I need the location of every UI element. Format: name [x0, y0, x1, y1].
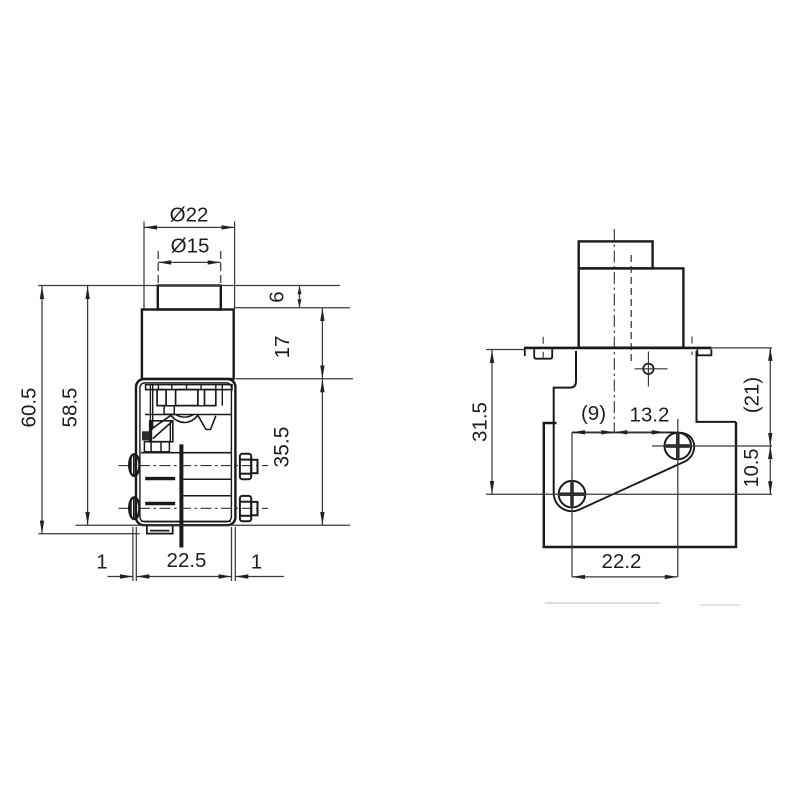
svg-text:22.2: 22.2 [602, 550, 642, 573]
svg-text:Ø15: Ø15 [171, 235, 210, 258]
svg-text:1: 1 [251, 551, 262, 574]
svg-text:(9): (9) [581, 402, 606, 425]
svg-text:35.5: 35.5 [271, 427, 294, 468]
svg-text:17: 17 [271, 336, 294, 359]
svg-text:10.5: 10.5 [741, 449, 763, 488]
svg-text:22.5: 22.5 [167, 549, 207, 572]
svg-text:60.5: 60.5 [18, 388, 41, 428]
svg-text:1: 1 [96, 551, 107, 574]
svg-text:(21): (21) [741, 377, 764, 413]
svg-text:13.2: 13.2 [630, 404, 670, 427]
svg-text:6: 6 [266, 291, 289, 302]
svg-text:Ø22: Ø22 [170, 204, 209, 227]
svg-text:31.5: 31.5 [469, 402, 492, 442]
svg-text:58.5: 58.5 [59, 388, 82, 428]
